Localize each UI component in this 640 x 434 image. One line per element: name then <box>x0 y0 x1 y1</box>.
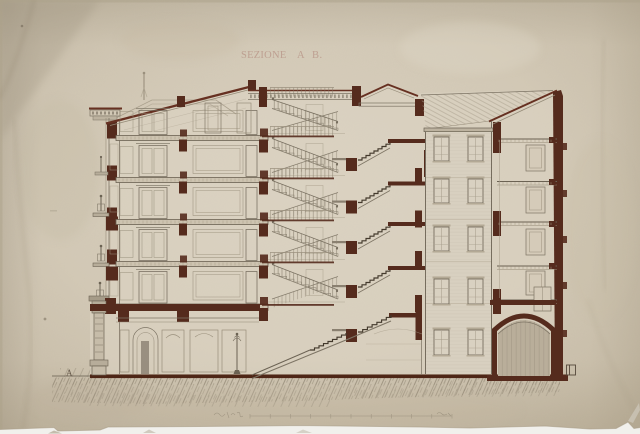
svg-text:A: A <box>66 368 73 378</box>
svg-text:B.: B. <box>312 50 323 61</box>
svg-text:SEZIONE: SEZIONE <box>241 50 287 61</box>
svg-text:A: A <box>297 50 305 61</box>
